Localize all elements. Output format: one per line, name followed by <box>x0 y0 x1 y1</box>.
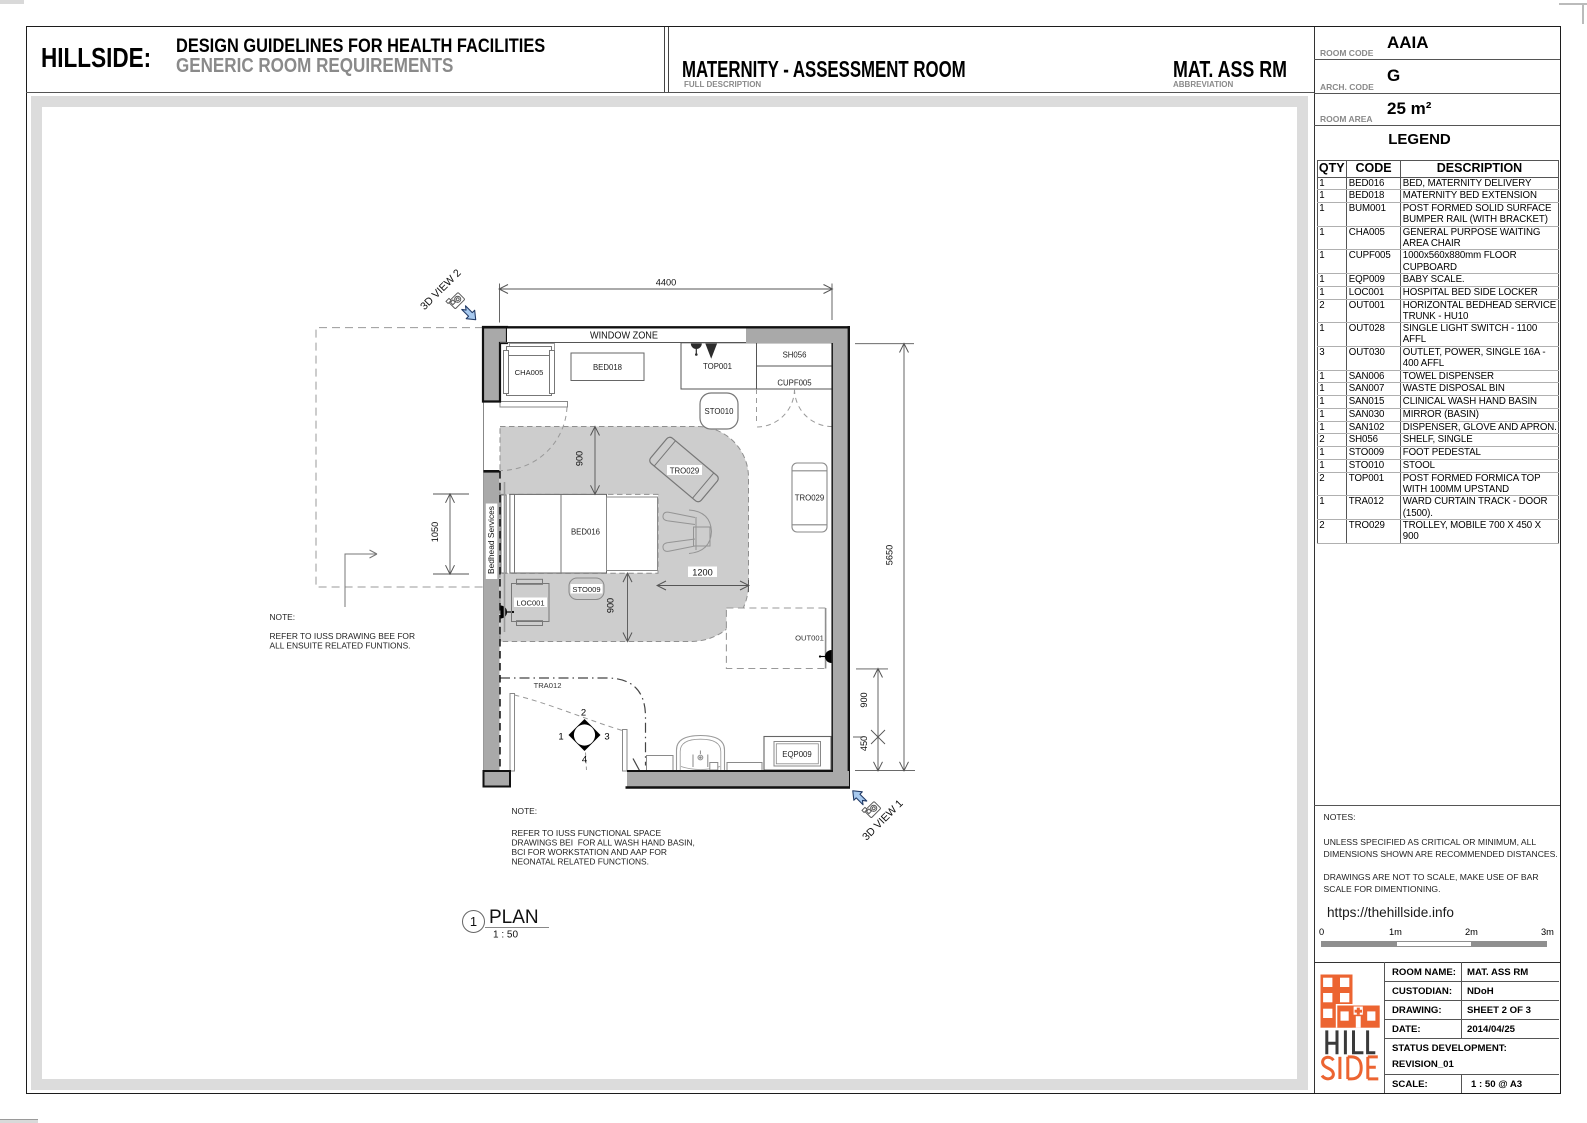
svg-text:EQP009: EQP009 <box>782 750 811 759</box>
svg-text:REFER TO IUSS FUNCTIONAL SPACE: REFER TO IUSS FUNCTIONAL SPACE <box>512 828 662 838</box>
svg-text:1200: 1200 <box>692 568 712 578</box>
svg-text:STO009: STO009 <box>572 585 600 594</box>
svg-text:CHA005: CHA005 <box>515 368 544 377</box>
svg-text:NEONATAL RELATED FUNCTIONS.: NEONATAL RELATED FUNCTIONS. <box>512 857 649 867</box>
svg-text:STO010: STO010 <box>705 407 735 416</box>
svg-text:NOTE:: NOTE: <box>270 612 296 622</box>
svg-text:1050: 1050 <box>430 522 440 542</box>
svg-text:BED018: BED018 <box>593 363 622 372</box>
svg-text:Bedhead Services: Bedhead Services <box>486 506 496 574</box>
svg-text:3D VIEW 1: 3D VIEW 1 <box>860 798 906 844</box>
svg-text:NOTE:: NOTE: <box>512 806 538 816</box>
svg-text:CUPF005: CUPF005 <box>777 379 812 388</box>
svg-text:900: 900 <box>606 598 616 613</box>
svg-text:BCI FOR WORKSTATION AND AAP FO: BCI FOR WORKSTATION AND AAP FOR <box>512 847 667 857</box>
svg-text:1 : 50: 1 : 50 <box>493 930 518 941</box>
svg-text:1: 1 <box>470 914 477 929</box>
svg-text:PLAN: PLAN <box>489 907 539 928</box>
svg-text:DRAWINGS BEI FOR ALL WASH HAN: DRAWINGS BEI FOR ALL WASH HAND BASIN, <box>512 838 695 848</box>
svg-text:450: 450 <box>859 736 869 751</box>
svg-text:LOC001: LOC001 <box>516 598 544 607</box>
svg-text:REFER TO IUSS DRAWING BEE FOR: REFER TO IUSS DRAWING BEE FOR <box>270 631 416 641</box>
svg-text:5650: 5650 <box>885 545 895 565</box>
svg-text:900: 900 <box>575 451 585 466</box>
svg-text:TRO029: TRO029 <box>795 494 824 503</box>
svg-text:BED016: BED016 <box>571 528 600 537</box>
svg-text:2: 2 <box>581 708 586 719</box>
svg-text:SH056: SH056 <box>783 351 807 360</box>
svg-text:WINDOW ZONE: WINDOW ZONE <box>590 331 658 342</box>
svg-text:TOP001: TOP001 <box>703 362 732 371</box>
svg-text:TRA012: TRA012 <box>534 681 562 690</box>
svg-text:1: 1 <box>558 732 563 743</box>
svg-text:ALL ENSUITE RELATED FUNTIONS.: ALL ENSUITE RELATED FUNTIONS. <box>270 641 411 651</box>
svg-text:4400: 4400 <box>656 278 676 288</box>
svg-text:900: 900 <box>859 692 869 707</box>
svg-text:OUT001: OUT001 <box>795 634 824 643</box>
svg-text:4: 4 <box>582 755 587 766</box>
svg-text:3: 3 <box>604 732 609 743</box>
svg-text:TRO029: TRO029 <box>670 466 699 475</box>
